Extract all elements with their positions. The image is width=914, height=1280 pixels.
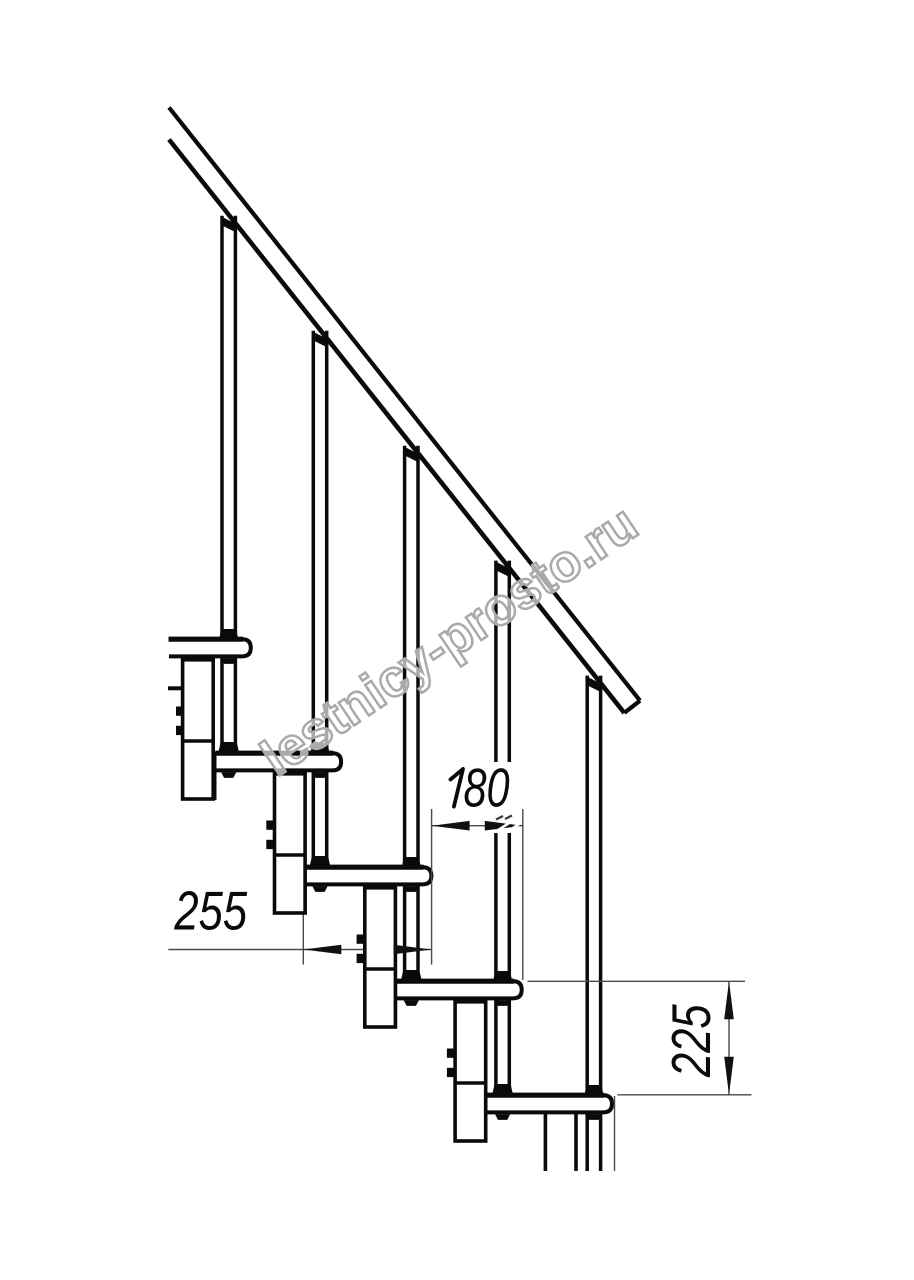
- svg-text:255: 255: [173, 881, 247, 942]
- svg-text:80: 80: [463, 758, 509, 819]
- svg-text:225: 225: [661, 1004, 722, 1078]
